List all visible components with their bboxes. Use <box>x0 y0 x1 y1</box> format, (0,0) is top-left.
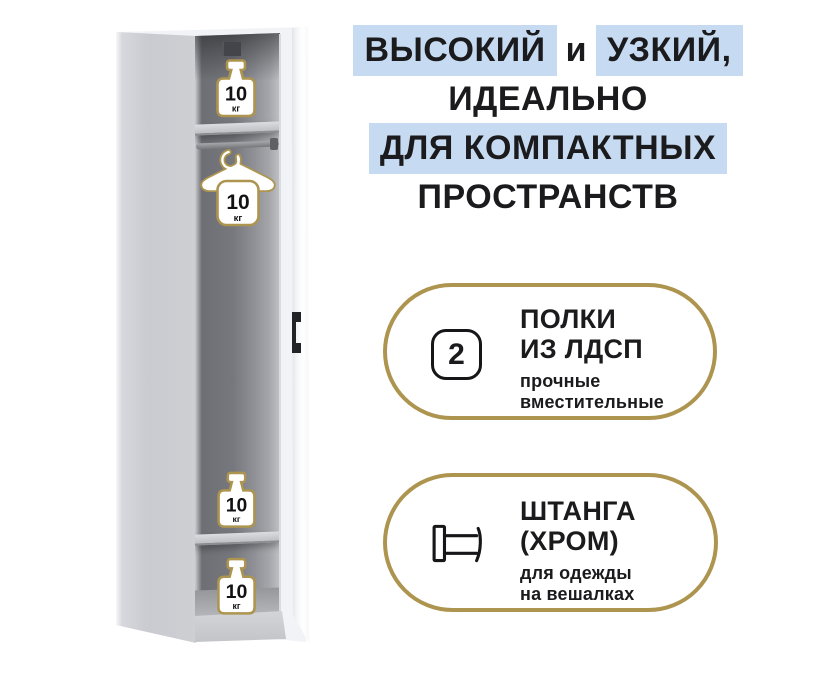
svg-text:кг: кг <box>232 601 240 611</box>
headline-line-1: ВЫСОКИЙ и УЗКИЙ, <box>336 28 760 73</box>
door-handle-mount-top <box>292 312 301 322</box>
headline-plain: ПРОСТРАНСТВ <box>418 175 679 220</box>
svg-text:кг: кг <box>234 213 243 224</box>
feature-subtitle: прочные вместительные <box>520 371 710 413</box>
feature-text-shelves: ПОЛКИ ИЗ ЛДСП прочные вместительные <box>520 304 710 413</box>
feature-pill-shelves: 2 ПОЛКИ ИЗ ЛДСП прочные вместительные <box>383 283 717 420</box>
hinge-icon <box>222 42 241 56</box>
svg-text:10: 10 <box>226 191 249 214</box>
headline-highlight: ДЛЯ КОМПАКТНЫХ <box>369 123 727 174</box>
wardrobe-shelf-bottom <box>195 531 280 545</box>
svg-text:10: 10 <box>225 84 247 106</box>
headline-highlight: ВЫСОКИЙ <box>353 25 556 76</box>
weight-10kg-icon: 10 кг <box>214 58 258 119</box>
feature-subtitle: для одежды на вешалках <box>520 563 710 605</box>
svg-text:кг: кг <box>232 104 241 114</box>
headline-line-4: ПРОСТРАНСТВ <box>336 175 760 220</box>
headline-line-3: ДЛЯ КОМПАКТНЫХ <box>336 126 760 171</box>
hanger-10kg-icon: 10 кг <box>198 136 278 230</box>
feature-text-rail: ШТАНГА (ХРОМ) для одежды на вешалках <box>520 496 710 605</box>
door-handle <box>292 312 301 353</box>
product-card: 10 кг 10 кг 10 кг 10 кг <box>0 0 816 700</box>
feature-title: ПОЛКИ ИЗ ЛДСП <box>520 304 710 364</box>
svg-text:кг: кг <box>233 514 241 524</box>
headline-highlight: УЗКИЙ, <box>596 25 743 76</box>
wardrobe-shelf-top <box>195 121 280 135</box>
wardrobe-interior <box>195 33 280 618</box>
wardrobe-side-panel <box>116 26 196 643</box>
weight-10kg-icon: 10 кг <box>215 471 258 529</box>
headline: ВЫСОКИЙ и УЗКИЙ, ИДЕАЛЬНО ДЛЯ КОМПАКТНЫХ… <box>336 28 760 220</box>
svg-text:10: 10 <box>226 581 248 603</box>
interior-right-edge <box>279 34 281 612</box>
headline-line-2: ИДЕАЛЬНО <box>336 77 760 122</box>
headline-plain: ИДЕАЛЬНО <box>448 77 648 122</box>
door-handle-mount-bottom <box>292 343 301 353</box>
clothes-rail-icon <box>431 521 487 567</box>
headline-plain: и <box>566 28 587 73</box>
feature-pill-rail: ШТАНГА (ХРОМ) для одежды на вешалках <box>383 473 718 612</box>
wardrobe-illustration: 10 кг 10 кг 10 кг 10 кг <box>116 26 312 648</box>
shelf-count-box: 2 <box>431 329 482 380</box>
shelf-count: 2 <box>448 338 465 372</box>
weight-10kg-icon: 10 кг <box>215 557 258 616</box>
feature-title: ШТАНГА (ХРОМ) <box>520 496 710 556</box>
